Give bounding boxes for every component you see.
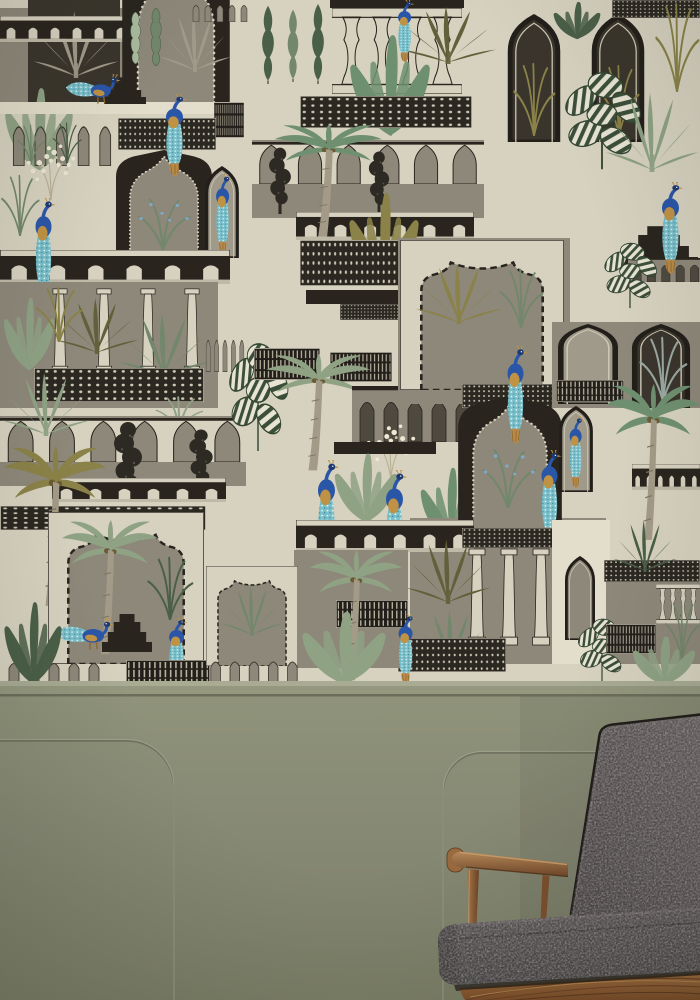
chair-rail-cap [0, 681, 700, 697]
chair-rail-band [0, 681, 700, 686]
interior-photo [0, 0, 700, 1000]
armrest-assembly [447, 848, 568, 924]
chair-rail-band [0, 686, 700, 694]
fabric-texture [430, 700, 700, 1000]
back-spindle [541, 875, 550, 922]
armchair [420, 700, 700, 1000]
